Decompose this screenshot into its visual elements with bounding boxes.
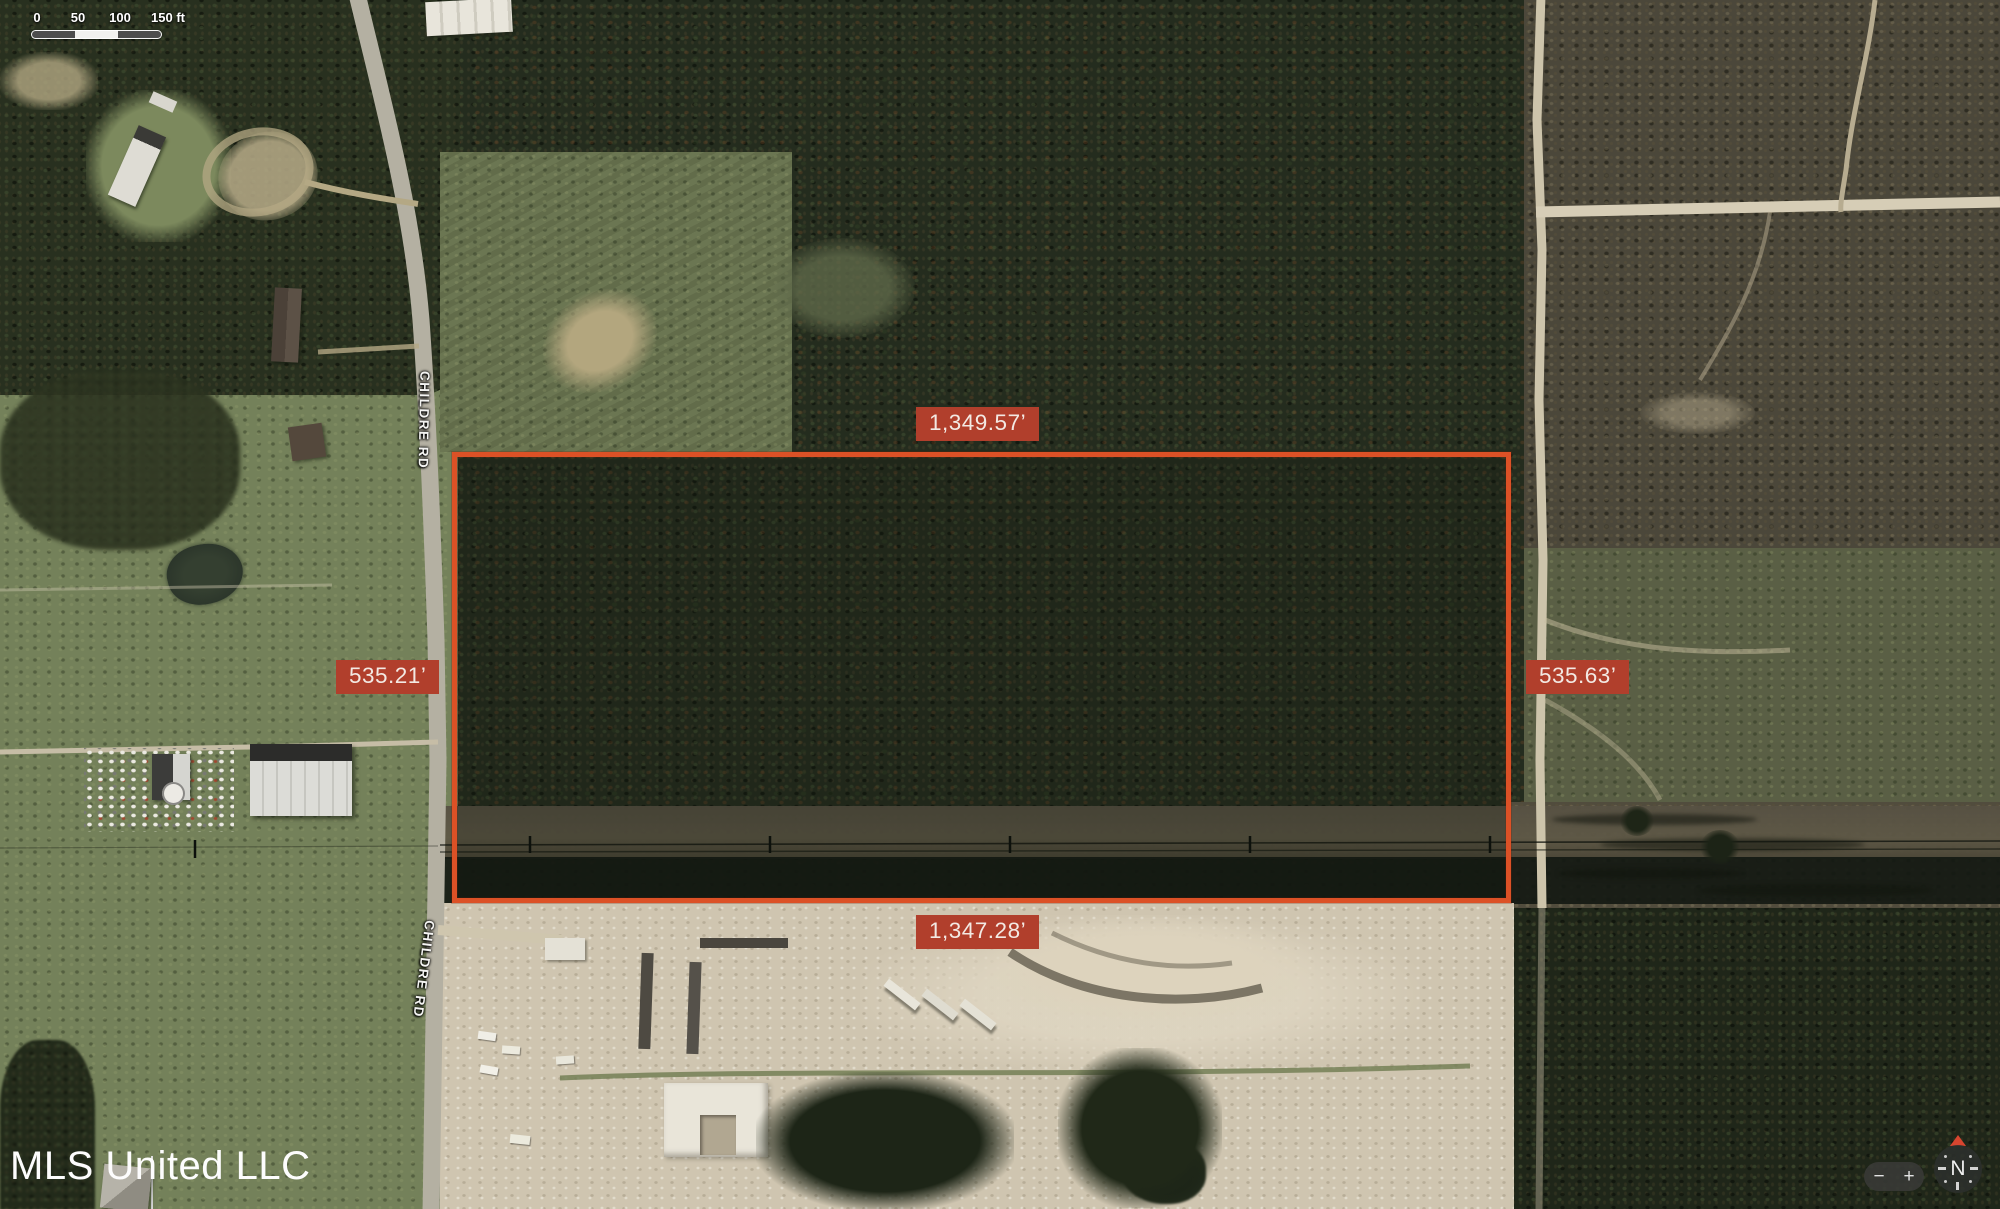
left-lawn xyxy=(86,90,231,242)
compass-dot-sw xyxy=(1944,1180,1947,1183)
truck-4 xyxy=(556,1055,575,1064)
mid-forest-clearing xyxy=(770,238,915,338)
scale-bar: 0 50 100 150 ft xyxy=(14,10,194,46)
scale-tick-100: 100 xyxy=(109,10,131,25)
right-bottom-forest xyxy=(1514,908,2000,1209)
compass-tick-east xyxy=(1970,1167,1978,1170)
compass-tick-south xyxy=(1956,1182,1959,1190)
compass-dot-se xyxy=(1969,1180,1972,1183)
dimension-label-left: 535.21’ xyxy=(336,660,439,694)
container-row-3 xyxy=(700,938,788,948)
concrete-pad xyxy=(664,1083,768,1157)
pad-recess xyxy=(700,1115,736,1155)
field-tree-1 xyxy=(1620,806,1654,836)
top-left-dirt-patch xyxy=(0,52,98,110)
zoom-in-button[interactable]: + xyxy=(1903,1167,1914,1186)
equipment-shed xyxy=(545,938,585,960)
scale-tick-0: 0 xyxy=(33,10,40,25)
warehouse-dark-slope xyxy=(250,744,352,761)
truck-2 xyxy=(502,1045,521,1054)
house-roof-1 xyxy=(271,287,302,362)
left-mid-forest xyxy=(0,370,240,550)
industrial-trees-2 xyxy=(1058,1048,1222,1208)
compass-dot-nw xyxy=(1944,1155,1947,1158)
compass-tick-west xyxy=(1938,1167,1946,1170)
junkyard xyxy=(78,742,370,836)
road-label-childre-rd-upper: CHILDRE RD xyxy=(416,371,433,467)
house-roof-2 xyxy=(288,423,326,461)
compass-dot-ne xyxy=(1969,1155,1972,1158)
compass-button[interactable]: N xyxy=(1934,1145,1982,1193)
zoom-out-button[interactable]: − xyxy=(1873,1167,1884,1186)
tree-shadow-1 xyxy=(1552,814,1757,825)
attribution-watermark: MLS United LLC xyxy=(10,1144,310,1189)
dimension-label-top: 1,349.57’ xyxy=(916,407,1039,441)
right-scrub-top xyxy=(1524,0,2000,556)
dimension-label-bottom: 1,347.28’ xyxy=(916,915,1039,949)
parcel-outline xyxy=(452,452,1511,903)
dimension-label-right: 535.63’ xyxy=(1526,660,1629,694)
industrial-trees-1 xyxy=(756,1072,1014,1209)
truck-5 xyxy=(510,1134,531,1145)
white-building-top-edge xyxy=(425,0,513,36)
tree-shadow-4 xyxy=(1698,884,1933,897)
scale-bar-track xyxy=(31,30,162,39)
right-clearing xyxy=(1640,392,1755,434)
satellite-map[interactable]: 1,349.57’ 1,347.28’ 535.21’ 535.63’ CHIL… xyxy=(0,0,2000,1209)
tree-shadow-3 xyxy=(1558,868,1743,879)
round-tank xyxy=(162,782,185,805)
scale-tick-150ft: 150 ft xyxy=(151,10,185,25)
scale-tick-50: 50 xyxy=(71,10,85,25)
zoom-control[interactable]: − + xyxy=(1864,1162,1924,1191)
field-tree-2 xyxy=(1700,830,1740,864)
